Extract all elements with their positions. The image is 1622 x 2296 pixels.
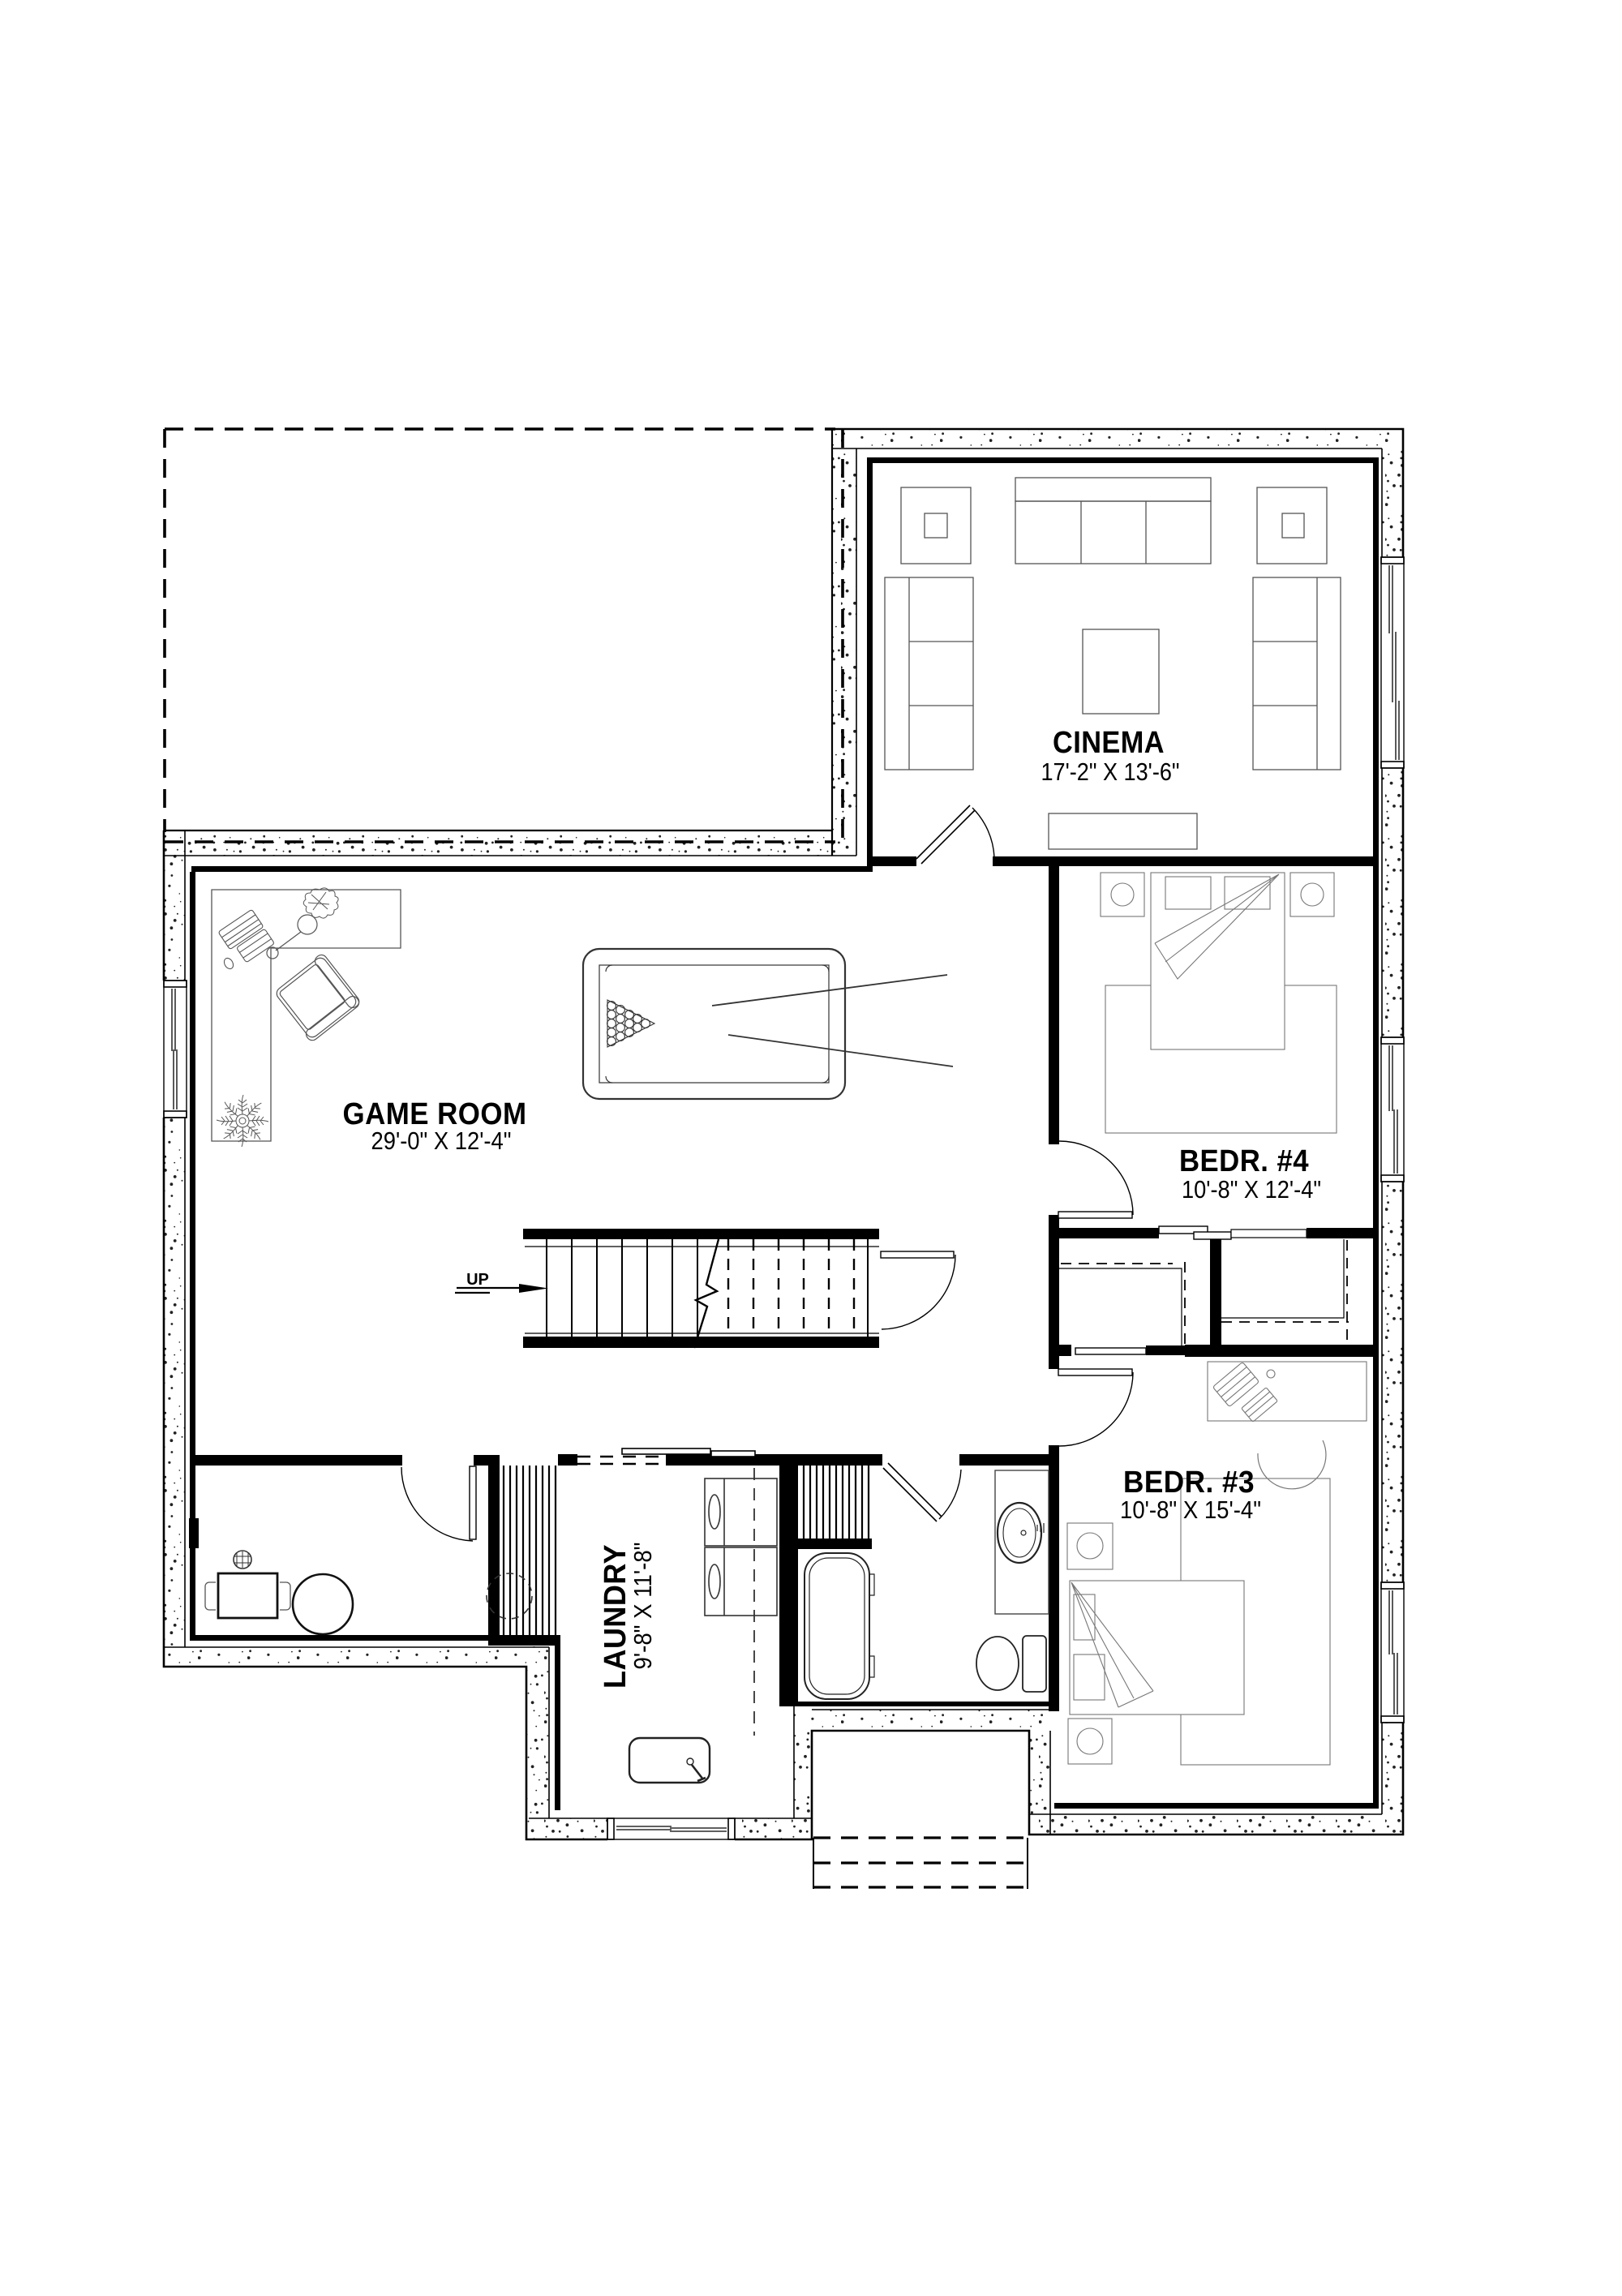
svg-text:LAUNDRY: LAUNDRY — [599, 1544, 633, 1689]
svg-text:UP: UP — [466, 1271, 489, 1289]
svg-text:10'-8" X 12'-4": 10'-8" X 12'-4" — [1182, 1175, 1321, 1204]
svg-text:9'-8" X 11'-8": 9'-8" X 11'-8" — [629, 1543, 657, 1670]
svg-text:29'-0" X 12'-4": 29'-0" X 12'-4" — [371, 1127, 512, 1155]
svg-text:BEDR. #4: BEDR. #4 — [1179, 1144, 1309, 1178]
svg-text:10'-8" X 15'-4": 10'-8" X 15'-4" — [1120, 1496, 1261, 1524]
svg-text:CINEMA: CINEMA — [1053, 726, 1165, 760]
svg-text:BEDR. #3: BEDR. #3 — [1123, 1466, 1255, 1500]
svg-text:17'-2" X 13'-6": 17'-2" X 13'-6" — [1041, 757, 1180, 786]
